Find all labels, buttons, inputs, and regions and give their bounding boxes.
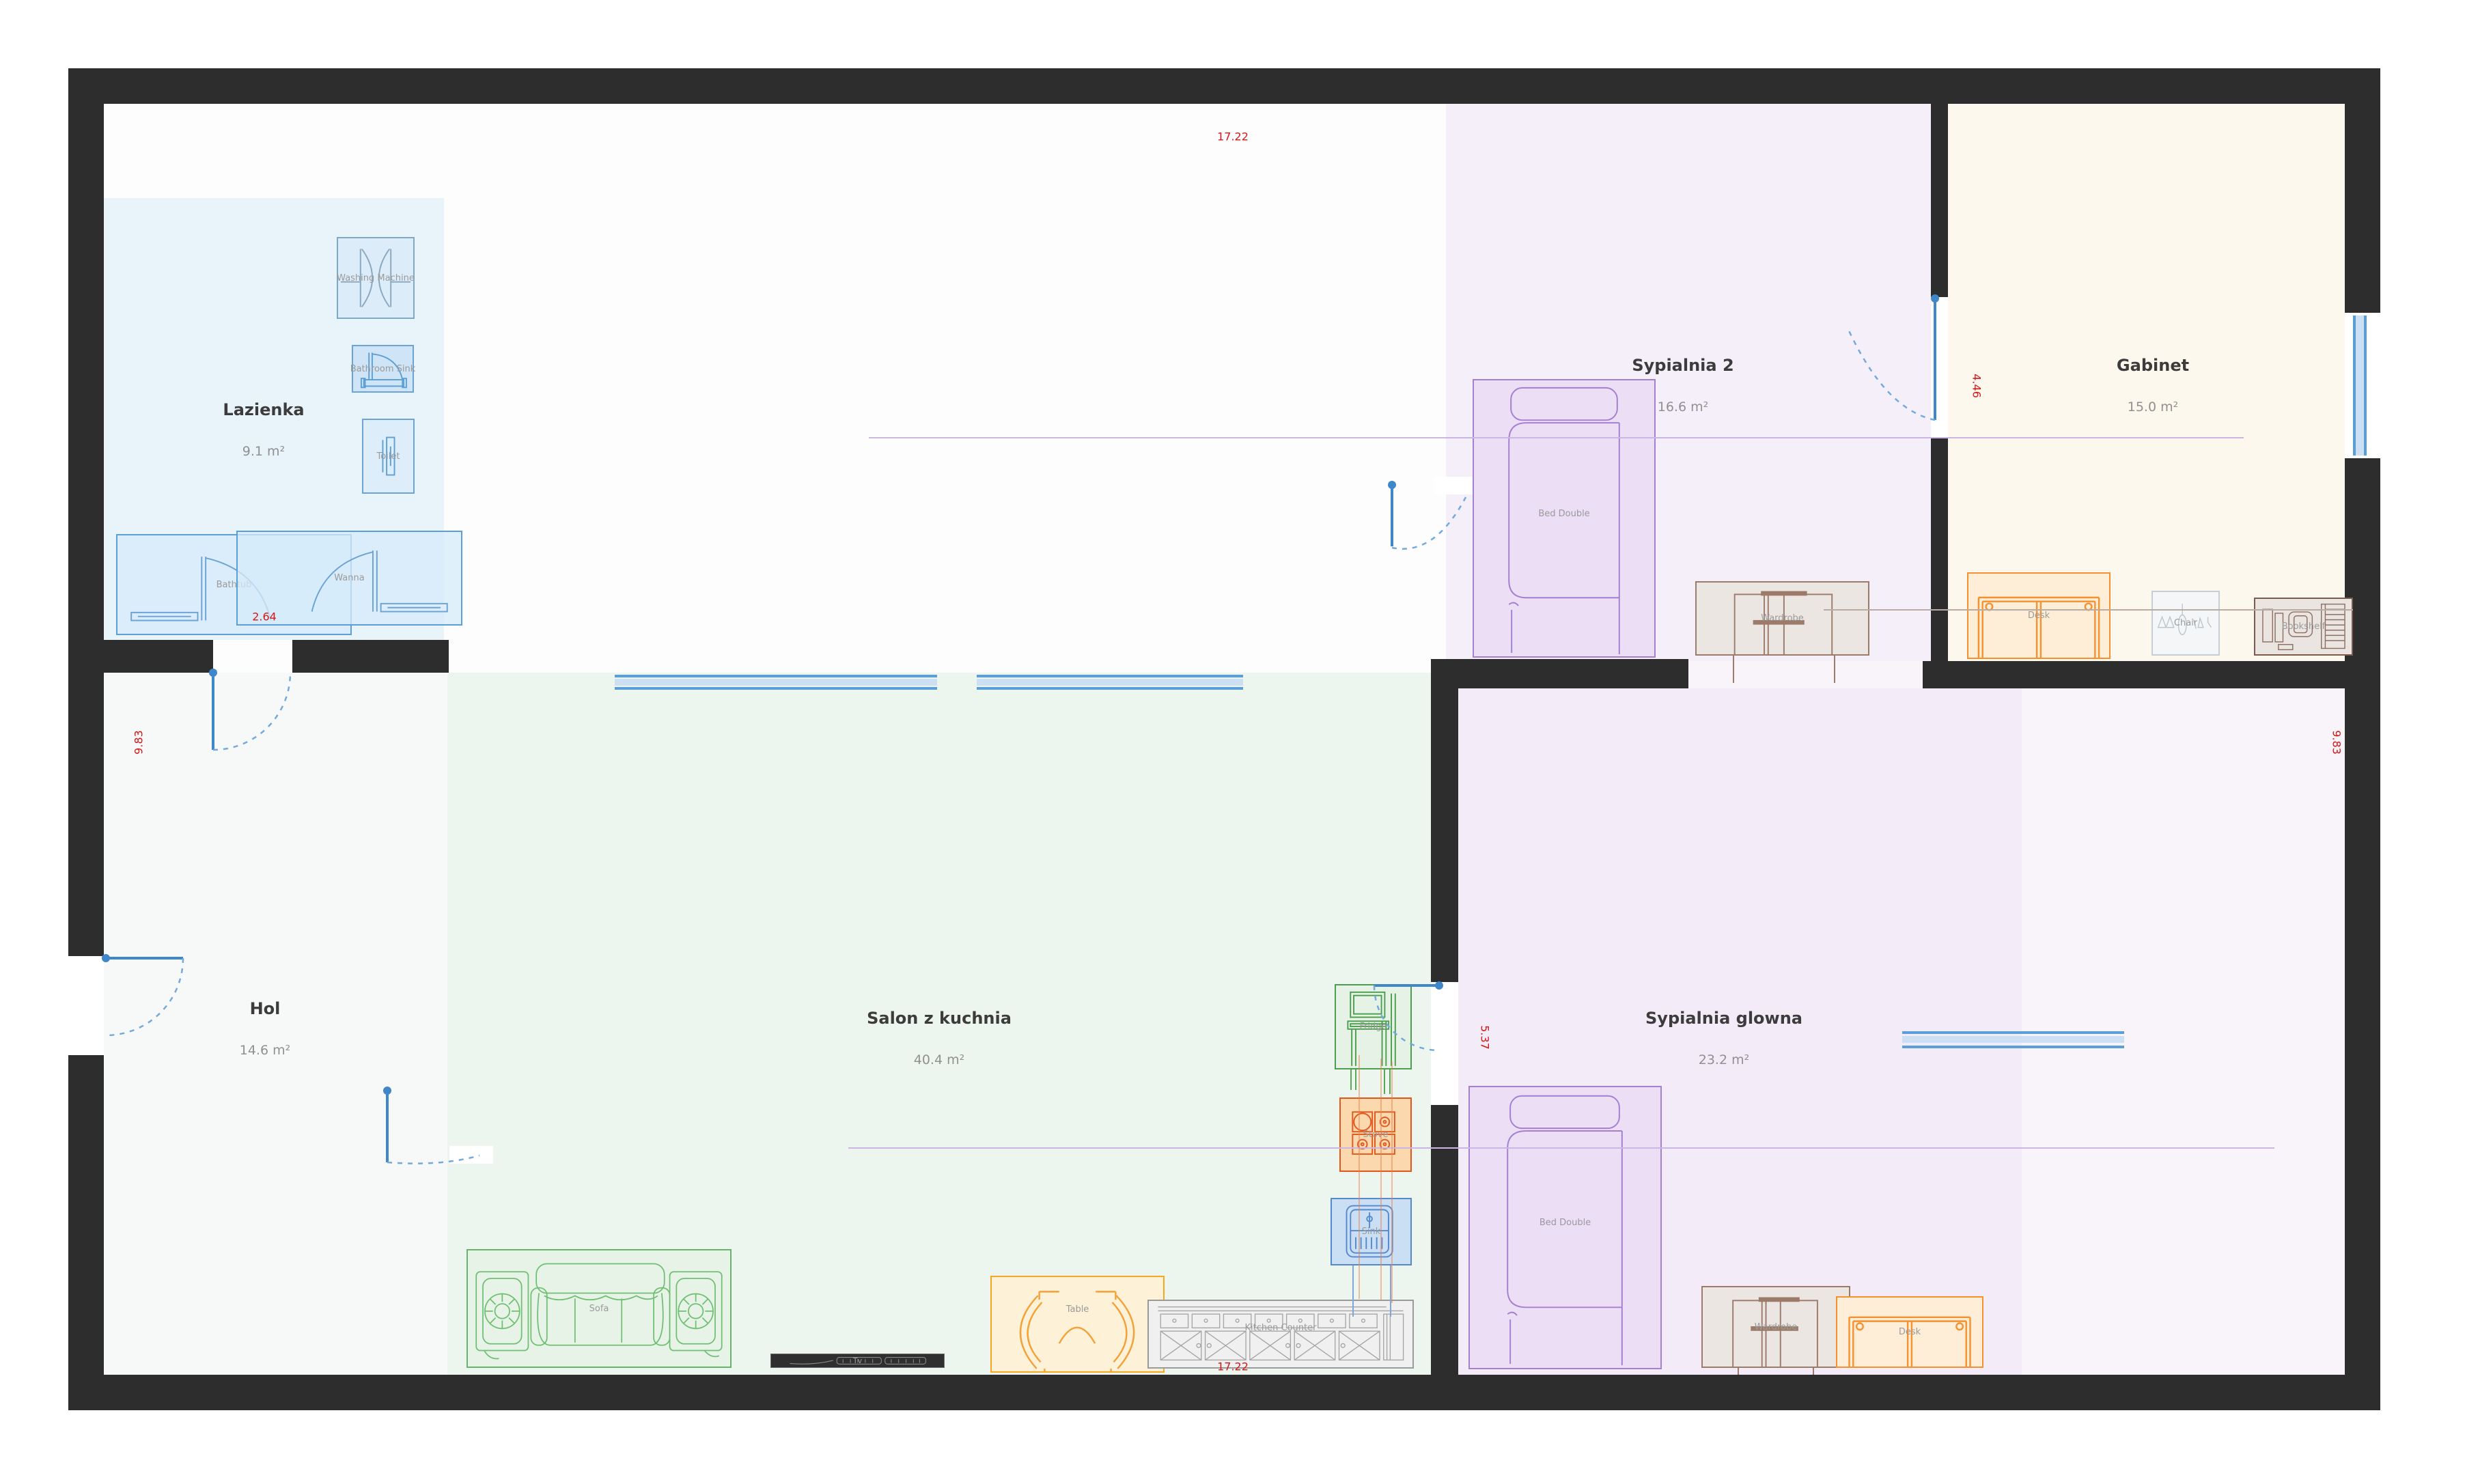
room-label-gabinet: Gabinet 15.0 m²: [2117, 356, 2189, 415]
floor-plan: Washing Machine Bathroom Sink Toilet Bat…: [0, 0, 2465, 1484]
room-label-hol: Hol 14.6 m²: [240, 999, 290, 1058]
doors-windows-overlay: [0, 0, 2465, 1484]
dimension-right-height: 9.83: [2330, 730, 2343, 755]
room-name: Gabinet: [2117, 356, 2189, 375]
room-area: 40.4 m²: [867, 1052, 1012, 1067]
room-name: Lazienka: [223, 400, 304, 419]
room-label-sypialnia-glowna: Sypialnia glowna 23.2 m²: [1645, 1009, 1802, 1067]
room-name: Sypialnia glowna: [1645, 1009, 1802, 1028]
dimension-glowna-door: 5.37: [1479, 1025, 1492, 1050]
dimension-left-height: 9.83: [133, 730, 145, 755]
room-name: Sypialnia 2: [1632, 356, 1733, 375]
dimension-bathtub: 2.64: [252, 611, 277, 624]
room-area: 23.2 m²: [1645, 1052, 1802, 1067]
room-label-salon: Salon z kuchnia 40.4 m²: [867, 1009, 1012, 1067]
room-label-lazienka: Lazienka 9.1 m²: [223, 400, 304, 459]
room-area: 15.0 m²: [2117, 400, 2189, 415]
room-area: 16.6 m²: [1632, 400, 1733, 415]
dimension-gabinet: 4.46: [1970, 374, 1983, 398]
room-area: 9.1 m²: [223, 444, 304, 459]
room-name: Salon z kuchnia: [867, 1009, 1012, 1028]
room-area: 14.6 m²: [240, 1043, 290, 1058]
room-label-sypialnia2: Sypialnia 2 16.6 m²: [1632, 356, 1733, 415]
dimension-top-width: 17.22: [1217, 130, 1249, 143]
dimension-bottom-width: 17.22: [1217, 1360, 1249, 1373]
room-name: Hol: [240, 999, 290, 1018]
